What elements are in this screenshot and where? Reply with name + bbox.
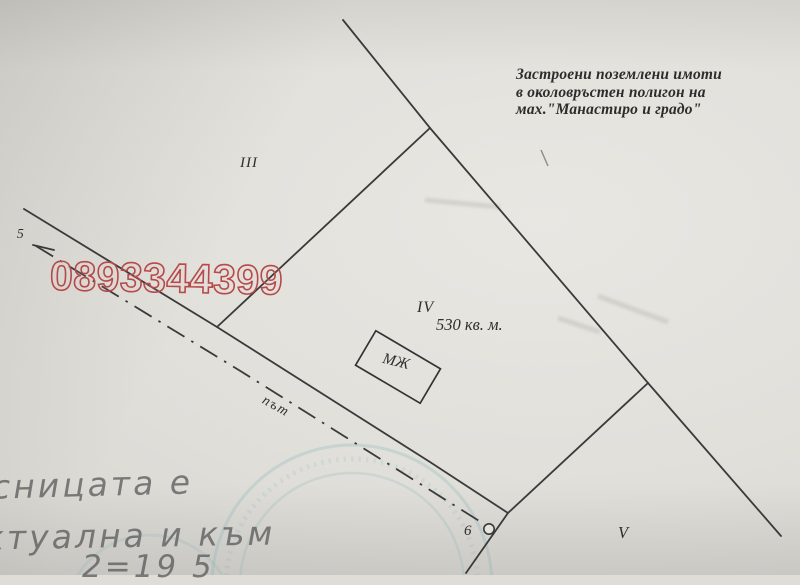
- stray-pen-mark: [541, 150, 548, 166]
- map-annotation-block: Застроени поземлени имоти в околовръстен…: [516, 66, 746, 119]
- handwriting-line-1: сницата е: [0, 462, 194, 506]
- annotation-line-1: Застроени поземлени имоти: [516, 66, 746, 84]
- boundary-line-north: [343, 20, 430, 128]
- boundary-line-east: [430, 128, 648, 383]
- bleedthrough-smudges: [425, 200, 668, 332]
- boundary-line-v: [466, 383, 648, 573]
- parcel-iv-label: IV: [417, 299, 434, 317]
- handwriting-line-3: 2=19 5: [82, 549, 215, 585]
- phone-watermark: 0893344399: [50, 253, 284, 304]
- survey-point-6-circle: [484, 524, 494, 534]
- parcel-iii-label: III: [240, 155, 258, 172]
- parcel-v-label: V: [618, 523, 629, 543]
- boundary-line-southeast: [648, 383, 781, 536]
- survey-point-5-label: 5: [17, 226, 24, 242]
- annotation-line-2: в околовръстен полигон на: [516, 84, 746, 102]
- survey-point-6-label: 6: [464, 523, 472, 540]
- annotation-line-3: мах."Манастиро и градо": [516, 101, 746, 119]
- parcel-iv-area-label: 530 кв. м.: [436, 315, 503, 335]
- point-5-tick: [33, 245, 54, 250]
